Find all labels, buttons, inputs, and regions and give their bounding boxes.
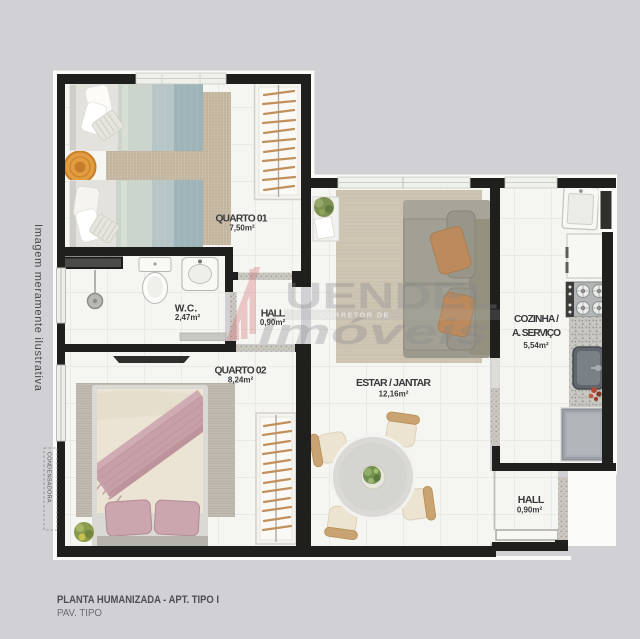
svg-text:8,24m²: 8,24m²	[228, 376, 254, 385]
svg-text:COZINHA /: COZINHA /	[514, 314, 559, 325]
svg-text:imóveis: imóveis	[258, 311, 490, 352]
svg-text:12,16m²: 12,16m²	[379, 390, 409, 399]
svg-text:PAV. TIPO: PAV. TIPO	[57, 608, 102, 619]
svg-text:Imagem meramente ilustrativa: Imagem meramente ilustrativa	[32, 224, 44, 392]
svg-text:ESTAR / JANTAR: ESTAR / JANTAR	[356, 377, 431, 389]
svg-text:5,54m²: 5,54m²	[523, 341, 549, 350]
svg-text:PLANTA HUMANIZADA - APT. TIPO: PLANTA HUMANIZADA - APT. TIPO I	[57, 594, 219, 606]
svg-text:0,90m²: 0,90m²	[517, 506, 543, 515]
svg-text:A. SERVIÇO: A. SERVIÇO	[512, 328, 561, 339]
svg-text:0,90m²: 0,90m²	[260, 318, 286, 327]
svg-text:HALL: HALL	[518, 494, 545, 506]
svg-text:7,50m²: 7,50m²	[229, 224, 255, 233]
svg-text:2,47m²: 2,47m²	[175, 313, 201, 322]
svg-text:CONDENSADORA: CONDENSADORA	[46, 452, 52, 503]
